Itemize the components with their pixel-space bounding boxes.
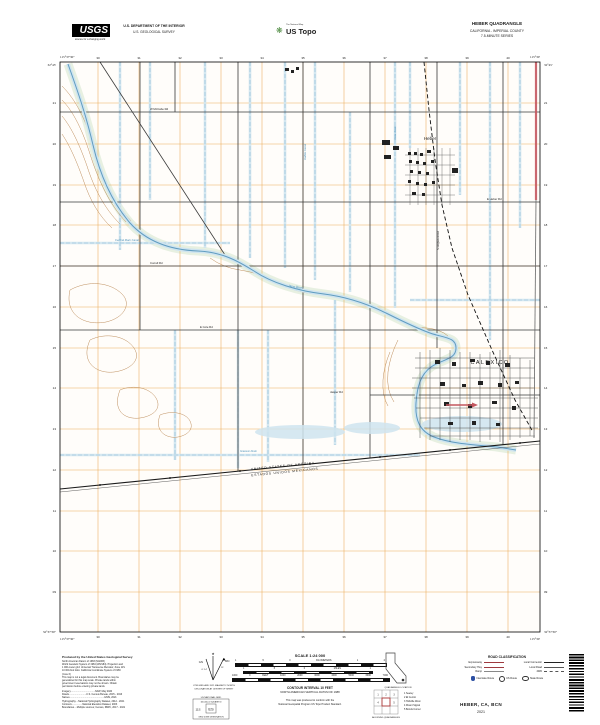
- usng-caption: GRID ZONE DESIGNATION: [198, 716, 224, 719]
- tick-left: 15: [53, 346, 57, 350]
- adjoining-cell-1: 1: [377, 694, 379, 697]
- tick-left: 11: [53, 509, 56, 513]
- legend-local-connector-line: [544, 662, 564, 663]
- tick-left: 19: [53, 183, 57, 187]
- us-route-shield-icon: [499, 676, 505, 682]
- tick-bottom: 38: [424, 635, 428, 639]
- tick-right: 20: [544, 142, 548, 146]
- us-route-label: US Route: [506, 677, 517, 680]
- tick-left: 09: [53, 590, 57, 594]
- tick-right: 11: [544, 509, 547, 513]
- tick-left: 16: [53, 305, 57, 309]
- adjoining-cell-4: 4: [377, 702, 379, 705]
- adjoining-caption: ADJOINING QUADRANGLES: [372, 716, 400, 719]
- legend-ramp-line: [484, 671, 504, 672]
- km-tick: .5: [262, 659, 264, 662]
- corner-br-lon: 115°30': [530, 637, 540, 641]
- tick-right: 17: [544, 264, 548, 268]
- adjoining-quad-name: 2 El Centro: [404, 696, 417, 699]
- usng-square-id: ES: [208, 707, 214, 712]
- mi-tick: 1: [243, 667, 244, 670]
- corner-bl-lon: 115°37'30": [60, 637, 75, 641]
- tick-right: 15: [544, 346, 548, 350]
- grid-north-label: GN: [199, 660, 203, 664]
- adjoining-quad-name: 1 Seeley: [404, 692, 414, 695]
- ft-unit: FEET: [262, 674, 268, 677]
- ft-tick: 6000: [366, 674, 371, 677]
- center-quad-cell: [382, 698, 390, 706]
- legend-4wd-line: [544, 671, 564, 672]
- scale-mi-labels: 1 .5 0 MILES 1: [243, 667, 371, 670]
- tick-left: 14: [53, 386, 57, 390]
- corner-tl-lon: 115°37'30": [60, 55, 75, 59]
- declination-caption-1: UTM GRID AND 2021 MAGNETIC NORTH: [193, 684, 235, 687]
- label-canal-dahlia: Dahlia Canal: [303, 144, 307, 160]
- km-tick: 1: [235, 659, 236, 662]
- legend-secondary-hwy-label: Secondary Hwy: [450, 666, 482, 669]
- corner-bl-lat: 32°37'30": [43, 630, 57, 634]
- label-calexico: CALEXICO: [470, 360, 509, 366]
- tick-right: 14: [544, 386, 548, 390]
- scale-bar-feet: [232, 678, 390, 682]
- adjoining-cell-3: 3: [393, 694, 395, 697]
- state-route-label: State Route: [530, 677, 543, 680]
- sheet-year: 2021: [426, 710, 536, 714]
- tick-right: 18: [544, 223, 548, 227]
- tick-bottom: 36: [342, 635, 346, 639]
- legend-local-connector-label: Local Connector: [508, 661, 542, 664]
- scale-km-labels: 1 .5 0 KILOMETERS 1 2: [235, 659, 385, 662]
- tick-top: 40: [506, 56, 510, 60]
- mi-unit: MILES: [334, 667, 341, 670]
- produced-title: Produced by the United States Geological…: [62, 655, 192, 659]
- contour-interval-note: CONTOUR INTERVAL 10 FEET: [235, 686, 385, 690]
- tick-top: 35: [301, 56, 305, 60]
- tick-left: 20: [53, 142, 57, 146]
- tick-right: 19: [544, 183, 548, 187]
- interstate-route-label: Interstate Route: [476, 677, 494, 680]
- label-canal-central: Central Main Canal: [115, 238, 139, 242]
- tick-bottom: 37: [383, 635, 387, 639]
- true-north-star-icon: ★: [211, 652, 214, 656]
- tick-left: 17: [53, 264, 57, 268]
- tick-right: 16: [544, 305, 548, 309]
- tick-top: 36: [342, 56, 346, 60]
- ft-tick: 3000: [314, 674, 319, 677]
- adjoining-quad-name: 5 Bonds Corner: [404, 708, 421, 711]
- vertical-datum-note: NORTH AMERICAN VERTICAL DATUM OF 1988: [235, 691, 385, 694]
- legend-local-road-line: [544, 667, 564, 668]
- tick-top: 33: [219, 56, 223, 60]
- corner-br-lat: 32°37'30": [544, 630, 558, 634]
- road-classification-title: ROAD CLASSIFICATION: [450, 655, 564, 659]
- magnetic-north-label: MN: [225, 659, 229, 663]
- label-road-heber: E Heber Rd: [487, 197, 502, 201]
- tick-right: 09: [544, 590, 548, 594]
- tick-right: 13: [544, 427, 548, 431]
- ft-tick: 1000: [232, 674, 237, 677]
- tick-bottom: 30: [96, 635, 100, 639]
- tick-right: 12: [544, 468, 548, 472]
- corner-tl-lat: 32°45': [47, 63, 56, 67]
- km-unit: KILOMETERS: [316, 659, 331, 662]
- ft-tick: 2000: [297, 674, 302, 677]
- standard-note-1: This map was produced to conform with th…: [235, 699, 385, 702]
- tick-bottom: 34: [260, 635, 264, 639]
- label-road-mccabe: W McCabe Rd: [150, 107, 169, 111]
- label-road-cole: E Cole Rd: [200, 325, 213, 329]
- produced-body: North American Datum of 1983 (NAD83) Wor…: [62, 660, 192, 688]
- tick-left: 18: [53, 223, 57, 227]
- label-drain-greeson: Greeson Drain: [240, 449, 257, 453]
- legend-local-road-label: Local Road: [508, 666, 542, 669]
- ft-tick: 0: [249, 674, 250, 677]
- ft-tick: 4000: [331, 674, 336, 677]
- label-road-jasper: Jasper Rd: [330, 390, 343, 394]
- road-classification-legend: ROAD CLASSIFICATION Expressway Local Con…: [450, 655, 564, 682]
- corner-tr-lat: 32°45': [544, 63, 553, 67]
- tick-bottom: 32: [178, 635, 182, 639]
- topo-map: Heber CALEXICO New River UNITED STATES O…: [0, 0, 600, 725]
- data-sources-list: Imagery.................................…: [62, 690, 192, 709]
- tick-bottom: 40: [506, 635, 510, 639]
- usng-zone: 11S: [195, 708, 200, 712]
- adjoining-quad-name: 3 Holtville West: [404, 700, 421, 703]
- sheet-name: HEBER, CA, BCN: [426, 702, 536, 707]
- tick-left: 21: [53, 101, 57, 105]
- tick-bottom: 33: [219, 635, 223, 639]
- tick-top: 30: [96, 56, 100, 60]
- legend-ramp-label: Ramp: [450, 670, 482, 673]
- magnetic-north-value: 11°: [221, 667, 224, 669]
- adjoining-quad-name: 4 Mount Signal: [404, 704, 420, 707]
- legend-expressway-line: [484, 662, 504, 664]
- tick-right: 21: [544, 101, 548, 105]
- label-drain-rose: Rose Drain: [393, 126, 397, 140]
- quad-location-dot: [402, 679, 405, 682]
- adjoining-cell-2: 2: [385, 694, 387, 697]
- tick-top: 34: [260, 56, 264, 60]
- km-tick: 0: [289, 659, 290, 662]
- california-outline: [386, 653, 406, 683]
- tick-left: 10: [53, 549, 57, 553]
- legend-secondary-hwy-line: [484, 667, 504, 668]
- grid-north-value: 0° 14': [201, 669, 207, 671]
- tick-right: 10: [544, 549, 548, 553]
- corner-tr-lon: 115°30': [530, 55, 540, 59]
- tick-left: 12: [53, 468, 57, 472]
- mi-tick: .5: [273, 667, 275, 670]
- usng-title: US NATIONAL GRID: [201, 696, 222, 699]
- tick-top: 39: [465, 56, 469, 60]
- usgs-topo-sheet: USGS science for a changing world U.S. D…: [0, 0, 600, 725]
- declination-caption-2: DECLINATION AT CENTER OF SHEET: [195, 688, 234, 691]
- tick-left: 13: [53, 427, 57, 431]
- state-location-inset: QUADRANGLE LOCATION: [378, 652, 422, 690]
- tick-top: 31: [137, 56, 141, 60]
- scale-ft-labels: 1000 0 FEET 1000 2000 3000 4000 5000 600…: [232, 674, 388, 677]
- produced-by-note: Produced by the United States Geological…: [62, 655, 192, 709]
- tick-top: 32: [178, 56, 182, 60]
- label-heber: Heber: [424, 136, 437, 141]
- ft-tick: 5000: [348, 674, 353, 677]
- tick-top: 38: [424, 56, 428, 60]
- interstate-shield-icon: [471, 676, 476, 681]
- km-tick: 1: [357, 659, 358, 662]
- ft-tick: 1000: [280, 674, 285, 677]
- tick-top: 37: [383, 56, 387, 60]
- usng-box: US NATIONAL GRID 100,000-m SQUARE ID ES …: [186, 695, 236, 721]
- legend-4wd-label: 4WD: [508, 670, 542, 673]
- map-background: [60, 62, 540, 632]
- legend-expressway-label: Expressway: [450, 661, 482, 664]
- label-road-correll: Correll Rd: [150, 261, 163, 265]
- tick-bottom: 39: [465, 635, 469, 639]
- mi-tick: 1: [370, 667, 371, 670]
- state-route-shield-icon: [522, 676, 529, 682]
- tick-bottom: 35: [301, 635, 305, 639]
- label-road-dogwood: S Dogwood Rd: [436, 231, 440, 250]
- tick-bottom: 31: [137, 635, 141, 639]
- mi-tick: 0: [304, 667, 305, 670]
- usng-subtitle: 100,000-m SQUARE ID: [200, 701, 222, 704]
- standard-note-2: National Geospatial Program US Topo Prod…: [235, 703, 385, 706]
- scale-title: SCALE 1:24 000: [235, 653, 385, 658]
- adjoining-cell-5: 5: [393, 702, 395, 705]
- barcode: [569, 654, 584, 712]
